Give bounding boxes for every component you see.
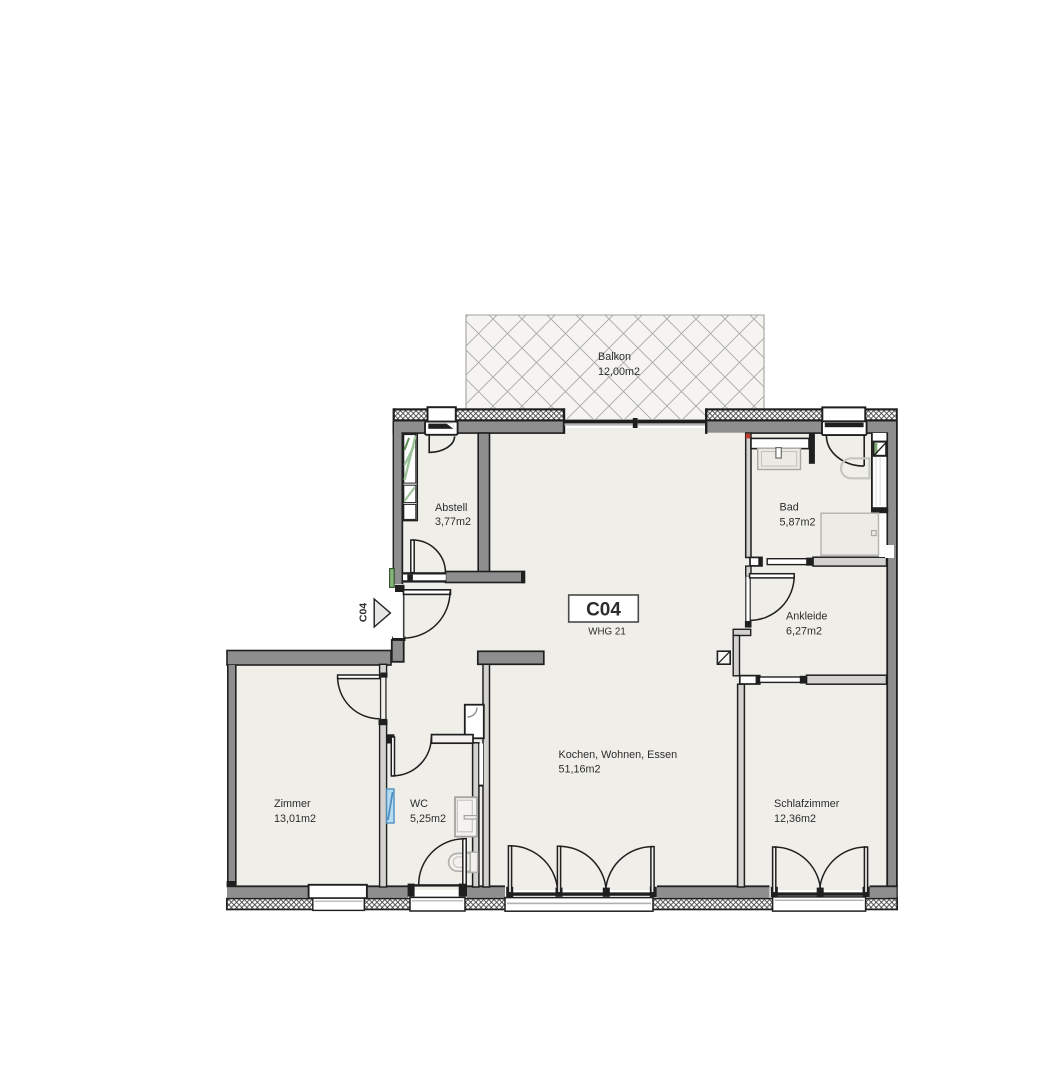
svg-text:C04: C04 (586, 600, 621, 621)
svg-text:13,01m2: 13,01m2 (274, 813, 316, 825)
svg-text:WC: WC (410, 798, 428, 810)
svg-text:12,36m2: 12,36m2 (774, 813, 816, 825)
svg-text:51,16m2: 51,16m2 (559, 764, 601, 776)
svg-text:5,25m2: 5,25m2 (410, 813, 446, 825)
svg-text:3,77m2: 3,77m2 (435, 516, 471, 528)
svg-text:Ankleide: Ankleide (786, 611, 827, 623)
svg-text:12,00m2: 12,00m2 (598, 366, 640, 378)
svg-text:5,87m2: 5,87m2 (780, 517, 816, 529)
svg-text:WHG 21: WHG 21 (588, 627, 626, 638)
svg-text:Abstell: Abstell (435, 502, 467, 514)
svg-text:Kochen, Wohnen, Essen: Kochen, Wohnen, Essen (559, 749, 678, 761)
svg-text:Bad: Bad (780, 502, 799, 514)
svg-text:C04: C04 (358, 603, 370, 622)
svg-text:Schlafzimmer: Schlafzimmer (774, 798, 840, 810)
svg-text:Zimmer: Zimmer (274, 798, 311, 810)
svg-text:Balkon: Balkon (598, 351, 631, 363)
svg-text:6,27m2: 6,27m2 (786, 626, 822, 638)
